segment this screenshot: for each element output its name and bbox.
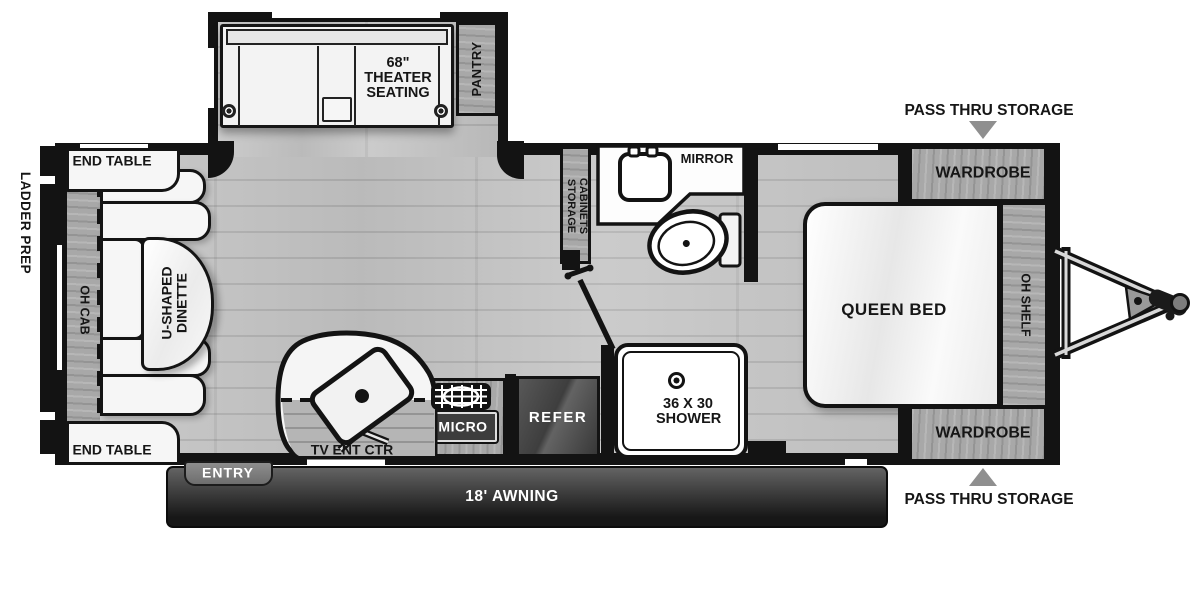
end-table-bottom-label: END TABLE [72,443,151,458]
sink-icon [620,154,670,200]
mirror-label: MIRROR [681,152,734,166]
hitch [1055,247,1190,359]
entry-label: ENTRY [202,466,254,481]
shower-label: 36 X 30 SHOWER [656,397,720,427]
pantry-label: PANTRY [470,42,484,97]
ladder-prep-label: LADDER PREP [18,172,32,274]
dinette-label: U-SHAPED DINETTE [159,263,188,343]
bath-door [565,265,614,350]
tv-ent-ctr-label: TV ENT CTR [311,443,393,458]
tv-cabinet [278,333,435,457]
storage-cabinets-label-line1: STORAGE [564,179,576,233]
awning-label: 18' AWNING [465,489,558,505]
arrow-up-icon [969,468,997,486]
pass-thru-top-label: PASS THRU STORAGE [904,103,1073,119]
theater-label: 68" THEATER SEATING [363,56,433,102]
micro-label: MICRO [438,420,487,435]
end-table-top-label: END TABLE [72,154,151,169]
queen-bed-label: QUEEN BED [841,301,947,319]
storage-cabinets-label-line2: CABINETS [576,178,588,234]
cooktop-icon [431,383,491,410]
oh-cab-label: OH CAB [77,285,90,334]
refer-label: REFER [529,410,587,426]
rv-floorplan: LADDER PREP END TABLE END TABLE OH CAB U… [0,0,1200,600]
wardrobe-bottom-label: WARDROBE [935,426,1030,443]
arrow-down-icon [969,121,997,139]
oh-shelf-label: OH SHELF [1018,273,1031,336]
wardrobe-top-label: WARDROBE [935,166,1030,183]
pass-thru-bottom-label: PASS THRU STORAGE [904,492,1073,508]
